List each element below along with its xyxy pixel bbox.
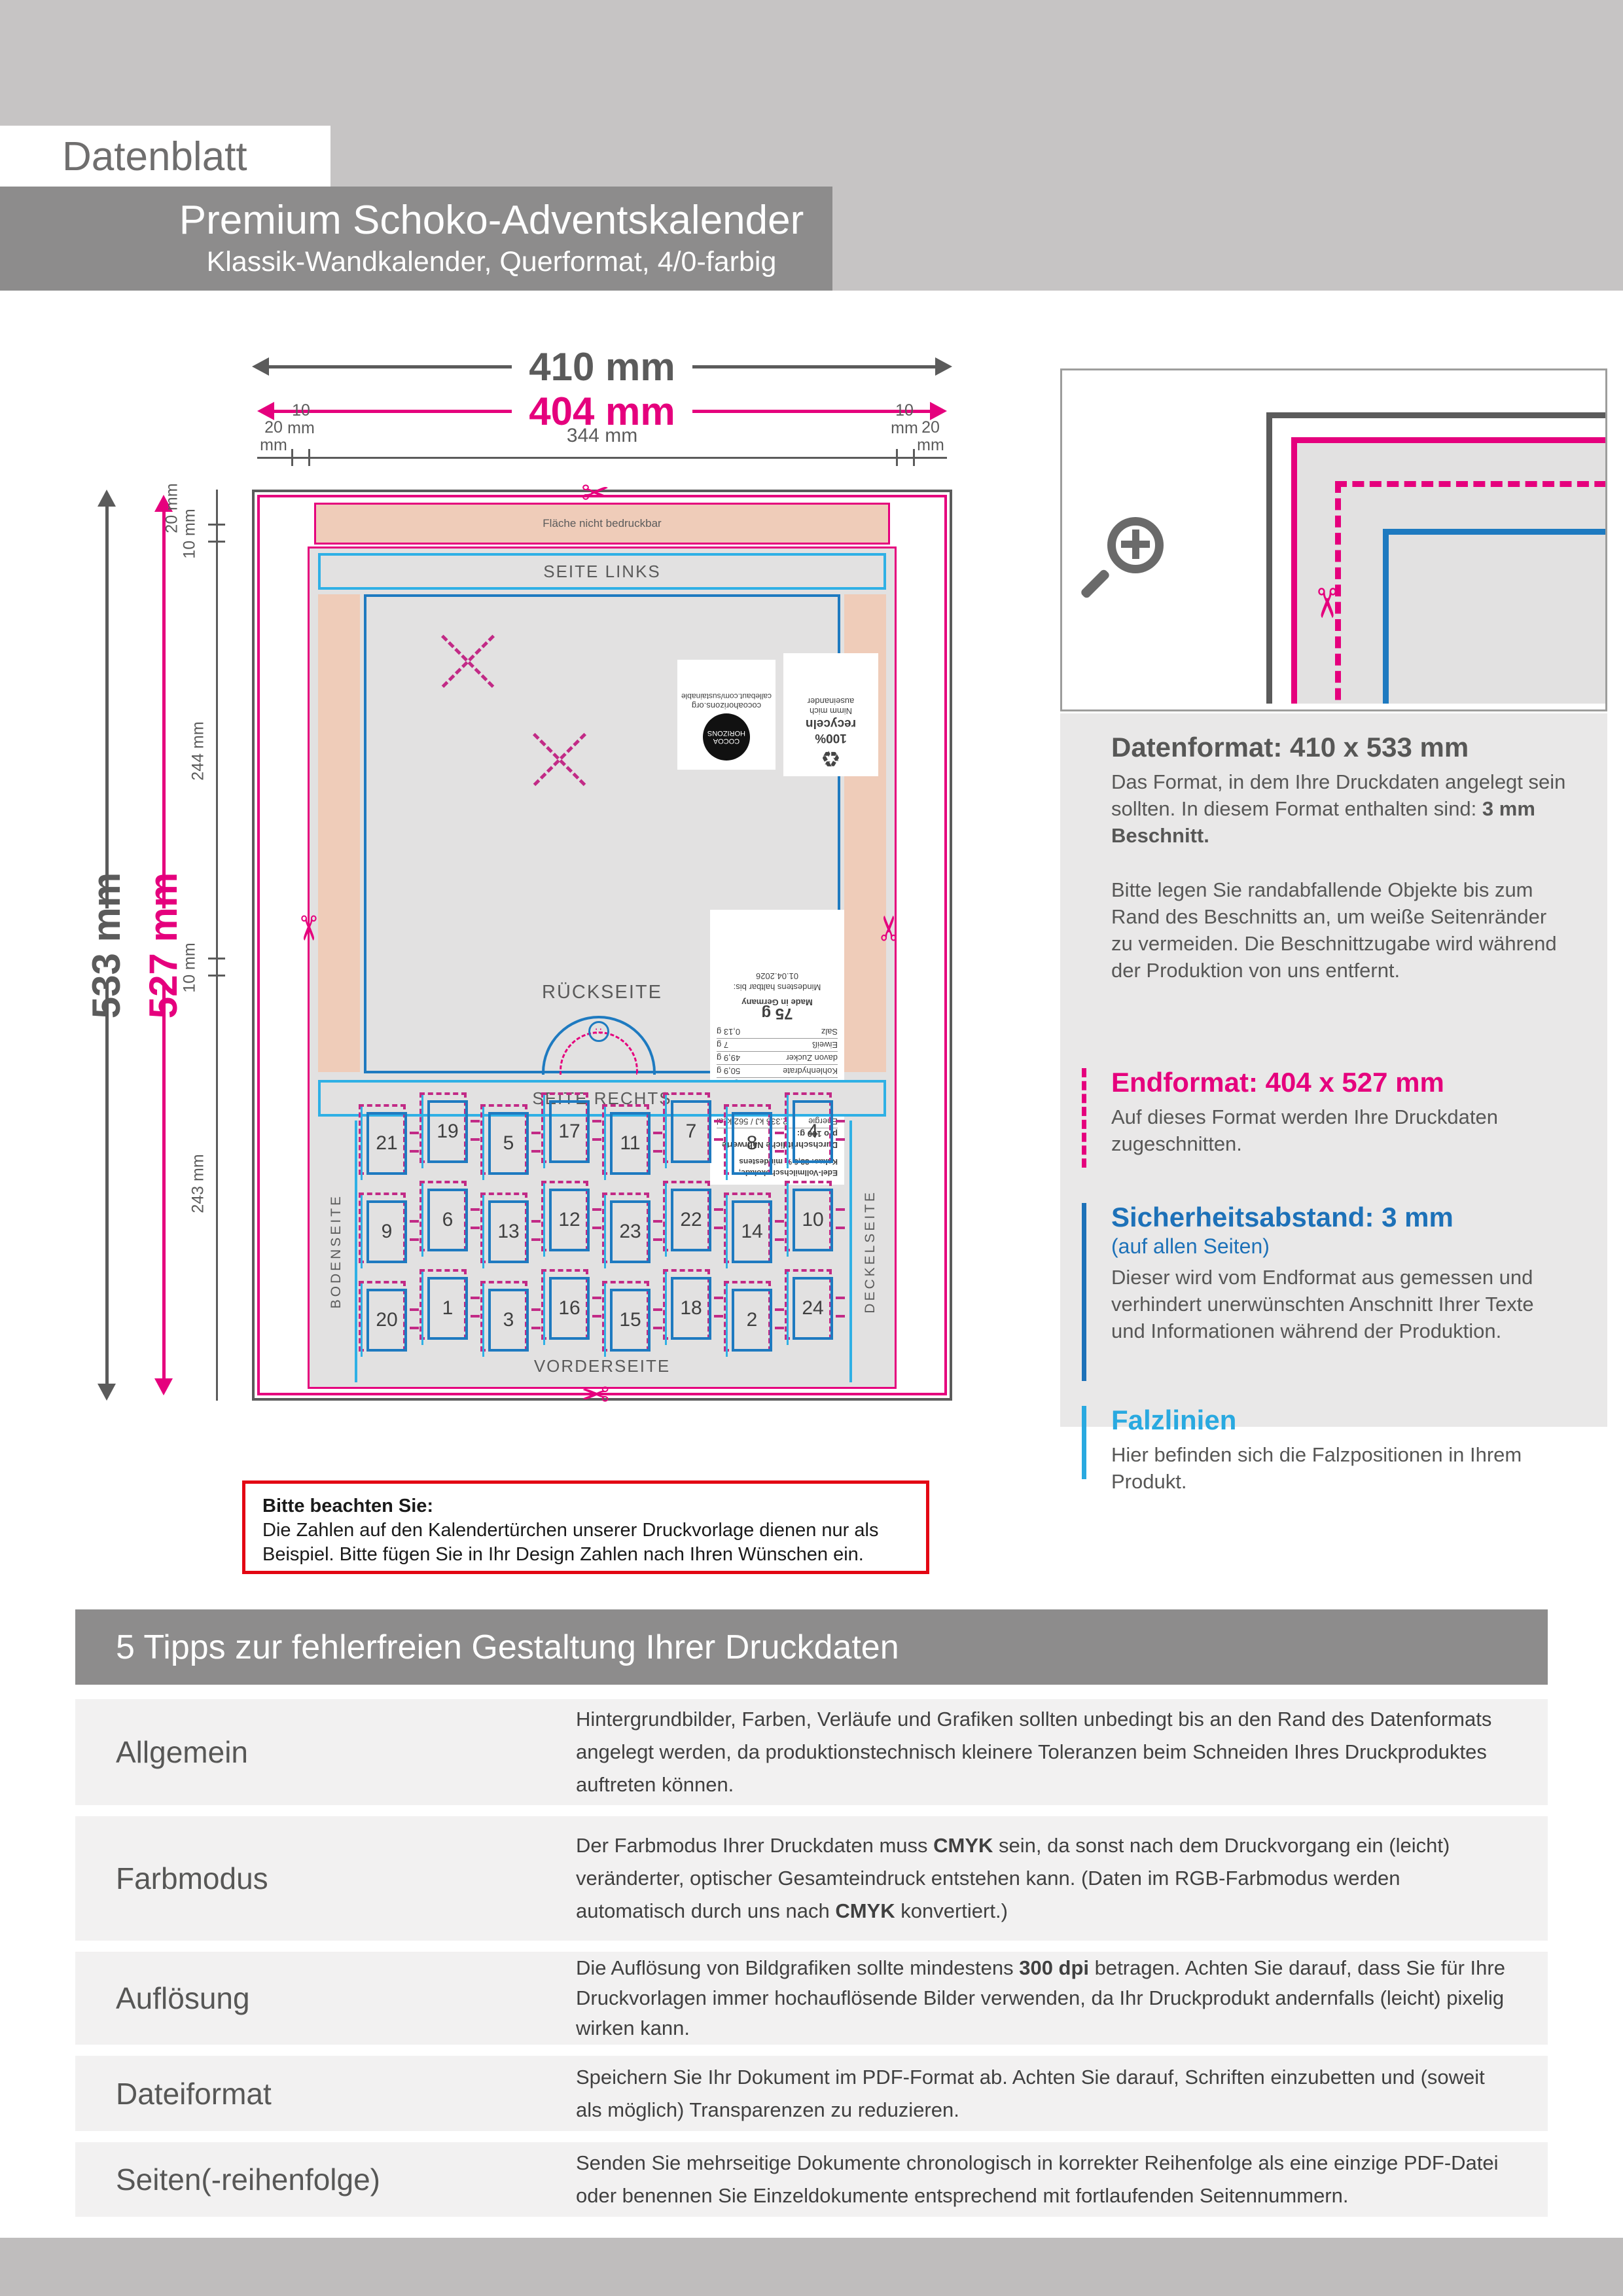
safety-line — [1383, 529, 1605, 704]
door-foldline — [482, 1195, 484, 1268]
door-mark — [775, 1150, 784, 1153]
ruler-tick — [308, 449, 310, 466]
tip-label: Seiten(-reihenfolge) — [75, 2162, 576, 2197]
door-mark — [471, 1208, 480, 1211]
tip-label: Farbmodus — [75, 1861, 576, 1896]
door-mark — [836, 1120, 845, 1122]
door-foldline — [665, 1095, 667, 1168]
door-mark — [836, 1227, 845, 1229]
door-number: 3 — [488, 1289, 529, 1352]
door-mark — [410, 1220, 419, 1223]
calendar-door: 22 — [671, 1189, 711, 1251]
door-foldline — [726, 1107, 728, 1180]
ruler-label-20mm-right: 20 mm — [911, 419, 950, 454]
rueckseite-label: RÜCKSEITE — [364, 982, 840, 1003]
ruler-label-20mm-top: 20 mm — [163, 483, 182, 533]
calendar-door: 2 — [732, 1289, 772, 1352]
nutrition-row: Salz0,13 g — [717, 1026, 838, 1039]
calendar-door: 20 — [366, 1289, 407, 1352]
door-foldline — [361, 1107, 363, 1180]
calendar-door: 23 — [610, 1200, 651, 1263]
section-falzlinien: Falzlinien Hier befinden sich die Falzpo… — [1111, 1405, 1569, 1495]
door-mark — [775, 1308, 784, 1311]
arrowhead-icon — [154, 1378, 173, 1395]
calendar-door: 15 — [610, 1289, 651, 1352]
recycle-label: ♻ 100% recyceln Nimm mich auseinander — [783, 653, 878, 776]
door-mark — [471, 1138, 480, 1141]
door-mark — [653, 1308, 662, 1311]
scissors-icon-detail: ✂ — [1302, 586, 1350, 620]
door-number: 20 — [366, 1289, 407, 1352]
deckelseite-label: DECKELSEITE — [863, 1190, 878, 1314]
door-number: 7 — [671, 1100, 711, 1163]
door-number: 21 — [366, 1112, 407, 1175]
calendar-door: 3 — [488, 1289, 529, 1352]
datenformat-heading: Datenformat: 410 x 533 mm — [1111, 732, 1569, 763]
tip-label: Dateiformat — [75, 2076, 576, 2111]
door-mark — [714, 1120, 723, 1122]
door-mark — [410, 1308, 419, 1311]
ruler-tick — [208, 975, 225, 977]
calendar-door: 24 — [793, 1277, 833, 1340]
nutrition-row: Kohlenhydrate50,9 g — [717, 1065, 838, 1078]
door-foldline — [361, 1283, 363, 1357]
falz-heading: Falzlinien — [1111, 1405, 1569, 1436]
arrowhead-icon — [98, 1384, 116, 1401]
door-foldline — [726, 1283, 728, 1357]
sicherheit-subheading: (auf allen Seiten) — [1111, 1233, 1569, 1260]
door-mark — [714, 1208, 723, 1211]
door-number: 11 — [610, 1112, 651, 1175]
scissors-icon-top: ✂ — [581, 476, 610, 511]
door-number: 13 — [488, 1200, 529, 1263]
door-mark — [836, 1315, 845, 1318]
door-mark — [592, 1227, 601, 1229]
door-mark — [592, 1120, 601, 1122]
door-number: 4 — [793, 1100, 833, 1163]
door-mark — [592, 1138, 601, 1141]
ruler-label-10mm-mid: 10 mm — [181, 942, 200, 992]
calendar-door: 21 — [366, 1112, 407, 1175]
tip-row-seitenreihenfolge: Seiten(-reihenfolge) Senden Sie mehrseit… — [75, 2142, 1548, 2217]
hanging-hole-button: ∷ — [588, 1021, 609, 1042]
door-foldline — [604, 1195, 606, 1268]
calendar-door: 19 — [427, 1100, 468, 1163]
door-foldline — [787, 1272, 789, 1345]
tips-title: 5 Tipps zur fehlerfreien Gestaltung Ihre… — [116, 1628, 899, 1667]
door-number: 23 — [610, 1200, 651, 1263]
door-mark — [531, 1150, 541, 1153]
ruler-tick — [208, 541, 225, 543]
door-foldline — [421, 1183, 423, 1257]
dimension-533mm: 533 mm — [84, 490, 130, 1401]
arrowhead-icon — [935, 357, 952, 376]
peach-strip-left — [318, 594, 360, 1072]
door-foldline — [665, 1272, 667, 1345]
calendar-door: 9 — [366, 1200, 407, 1263]
datenblatt-label: Datenblatt — [0, 134, 247, 180]
door-number: 8 — [732, 1112, 772, 1175]
info-panel: Datenformat: 410 x 533 mm Das Format, in… — [1060, 713, 1607, 1427]
door-mark — [653, 1220, 662, 1223]
door-foldline — [482, 1283, 484, 1357]
top-ruler-line — [257, 457, 947, 459]
calendar-door: 11 — [610, 1112, 651, 1175]
door-mark — [471, 1227, 480, 1229]
dimension-527mm: 527 mm — [141, 495, 187, 1395]
page-subtitle: Klassik-Wandkalender, Querformat, 4/0-fa… — [151, 243, 832, 280]
section-sicherheitsabstand: Sicherheitsabstand: 3 mm (auf allen Seit… — [1111, 1202, 1569, 1344]
ruler-label-344mm: 344 mm — [556, 427, 648, 444]
flap-label: Fläche nicht bedruckbar — [543, 517, 661, 530]
door-number: 6 — [427, 1189, 468, 1251]
door-number: 14 — [732, 1200, 772, 1263]
cocoa-url2: callebaut.com/sustainable — [681, 692, 772, 701]
door-number: 12 — [549, 1189, 590, 1251]
tip-row-aufloesung: Auflösung Die Auflösung von Bildgrafiken… — [75, 1952, 1548, 2045]
calendar-door: 7 — [671, 1100, 711, 1163]
cocoa-url: cocoahorizons.org — [681, 701, 772, 711]
door-foldline — [421, 1095, 423, 1168]
sicherheit-text: Dieser wird vom Endformat aus gemessen u… — [1111, 1264, 1569, 1344]
panel-deckelseite: DECKELSEITE — [849, 1121, 889, 1382]
seite-links-label: SEITE LINKS — [543, 562, 661, 582]
tip-label: Auflösung — [75, 1981, 576, 2016]
calendar-door: 8 — [732, 1112, 772, 1175]
door-number: 18 — [671, 1277, 711, 1340]
door-mark — [653, 1238, 662, 1241]
tip-label: Allgemein — [75, 1734, 576, 1770]
datenformat-text1: Das Format, in dem Ihre Druckdaten angel… — [1111, 768, 1569, 849]
tips-title-bar: 5 Tipps zur fehlerfreien Gestaltung Ihre… — [75, 1609, 1548, 1685]
datenformat-text2: Bitte legen Sie randabfallende Objekte b… — [1111, 876, 1569, 984]
door-number: 22 — [671, 1189, 711, 1251]
door-mark — [531, 1220, 541, 1223]
door-mark — [592, 1208, 601, 1211]
tip-row-farbmodus: Farbmodus Der Farbmodus Ihrer Druckdaten… — [75, 1816, 1548, 1941]
left-ruler-line — [216, 490, 218, 1401]
tip-text: Speichern Sie Ihr Dokument im PDF-Format… — [576, 2061, 1548, 2126]
cocoa-label: COCOA HORIZONS cocoahorizons.org calleba… — [677, 660, 776, 770]
tip-text: Der Farbmodus Ihrer Druckdaten muss CMYK… — [576, 1829, 1548, 1928]
door-mark — [714, 1227, 723, 1229]
calendar-door: 14 — [732, 1200, 772, 1263]
datasheet-page: Datenblatt Premium Schoko-Adventskalende… — [0, 0, 1623, 2296]
door-mark — [836, 1138, 845, 1141]
door-number: 2 — [732, 1289, 772, 1352]
sicherheit-heading: Sicherheitsabstand: 3 mm — [1111, 1202, 1569, 1233]
door-number: 1 — [427, 1277, 468, 1340]
sicherheit-marker-line — [1082, 1203, 1086, 1381]
door-mark — [775, 1220, 784, 1223]
door-foldline — [787, 1183, 789, 1257]
door-mark — [410, 1238, 419, 1241]
corner-detail-illustration: ✂ — [1266, 412, 1605, 704]
door-mark — [531, 1132, 541, 1134]
ruler-tick — [896, 449, 898, 466]
tip-text: Senden Sie mehrseitige Dokumente chronol… — [576, 2147, 1548, 2212]
note-box: Bitte beachten Sie: Die Zahlen auf den K… — [242, 1480, 929, 1574]
panel-seite-links: SEITE LINKS — [318, 553, 886, 590]
scissors-icon-left: ✂ — [291, 914, 325, 942]
tip-text: Hintergrundbilder, Farben, Verläufe und … — [576, 1703, 1548, 1801]
endformat-marker-line — [1082, 1068, 1086, 1168]
tip-row-allgemein: Allgemein Hintergrundbilder, Farben, Ver… — [75, 1699, 1548, 1805]
door-number: 24 — [793, 1277, 833, 1340]
door-number: 17 — [549, 1100, 590, 1163]
calendar-door: 4 — [793, 1100, 833, 1163]
door-mark — [653, 1327, 662, 1329]
falz-text: Hier befinden sich die Falzpositionen in… — [1111, 1441, 1569, 1495]
calendar-door: 17 — [549, 1100, 590, 1163]
door-mark — [592, 1315, 601, 1318]
scissors-icon-bottom: ✂ — [581, 1376, 610, 1410]
door-mark — [592, 1297, 601, 1299]
note-text: Die Zahlen auf den Kalendertürchen unser… — [262, 1520, 878, 1565]
door-number: 10 — [793, 1189, 833, 1251]
ruler-label-10mm-top: 10 mm — [181, 509, 200, 558]
door-foldline — [482, 1107, 484, 1180]
door-number: 15 — [610, 1289, 651, 1352]
nutrition-row: Eiweiß7 g — [717, 1039, 838, 1052]
door-number: 16 — [549, 1277, 590, 1340]
weight-label: 75 g — [717, 1008, 838, 1019]
door-mark — [471, 1297, 480, 1299]
arrowhead-icon — [98, 490, 116, 507]
title-bar: Premium Schoko-Adventskalender Klassik-W… — [0, 187, 832, 291]
calendar-door: 5 — [488, 1112, 529, 1175]
note-heading: Bitte beachten Sie: — [262, 1494, 909, 1518]
door-foldline — [726, 1195, 728, 1268]
arrowhead-icon — [252, 357, 269, 376]
door-mark — [471, 1120, 480, 1122]
door-mark — [531, 1327, 541, 1329]
ruler-tick — [208, 524, 225, 526]
door-mark — [410, 1150, 419, 1153]
door-mark — [714, 1138, 723, 1141]
datenblatt-box: Datenblatt — [0, 126, 330, 187]
ruler-tick — [208, 958, 225, 960]
door-foldline — [787, 1095, 789, 1168]
footer-band — [0, 2238, 1623, 2296]
section-datenformat: Datenformat: 410 x 533 mm Das Format, in… — [1111, 732, 1569, 984]
recycle-subtitle: Nimm mich auseinander — [789, 696, 873, 716]
door-mark — [653, 1150, 662, 1153]
falz-marker-line — [1082, 1406, 1086, 1479]
ruler-label-10mm-left: 10 mm — [281, 402, 321, 437]
page-title: Premium Schoko-Adventskalender — [151, 198, 832, 243]
panel-bodenseite: BODENSEITE — [318, 1121, 357, 1382]
door-mark — [471, 1315, 480, 1318]
door-foldline — [543, 1272, 545, 1345]
door-number: 19 — [427, 1100, 468, 1163]
door-mark — [836, 1208, 845, 1211]
tip-text: Die Auflösung von Bildgrafiken sollte mi… — [576, 1953, 1548, 2043]
ruler-label-243mm: 243 mm — [189, 1154, 208, 1213]
cocoa-logo-icon: COCOA HORIZONS — [703, 713, 750, 761]
door-mark — [775, 1238, 784, 1241]
door-number: 5 — [488, 1112, 529, 1175]
calendar-door: 18 — [671, 1277, 711, 1340]
arrowhead-icon — [257, 402, 274, 420]
door-mark — [531, 1238, 541, 1241]
endformat-heading: Endformat: 404 x 527 mm — [1111, 1067, 1569, 1098]
magnifier-plus-icon — [1132, 529, 1139, 559]
dimension-410mm: 410 mm — [252, 343, 952, 390]
door-number: 9 — [366, 1200, 407, 1263]
recycle-title: 100% recyceln — [789, 716, 873, 745]
calendar-door: 1 — [427, 1277, 468, 1340]
door-mark — [410, 1132, 419, 1134]
door-mark — [836, 1297, 845, 1299]
door-foldline — [604, 1107, 606, 1180]
door-foldline — [421, 1272, 423, 1345]
door-mark — [714, 1315, 723, 1318]
dot-marks: ∷ — [595, 1025, 602, 1038]
calendar-door: 12 — [549, 1189, 590, 1251]
endformat-text: Auf dieses Format werden Ihre Druckdaten… — [1111, 1103, 1569, 1157]
door-foldline — [665, 1183, 667, 1257]
dimension-410mm-label: 410 mm — [512, 344, 692, 389]
calendar-door: 13 — [488, 1200, 529, 1263]
calendar-door: 6 — [427, 1189, 468, 1251]
door-foldline — [543, 1095, 545, 1168]
tip-row-dateiformat: Dateiformat Speichern Sie Ihr Dokument i… — [75, 2056, 1548, 2131]
door-mark — [410, 1327, 419, 1329]
nutrition-row: davon Zucker49,9 g — [717, 1052, 838, 1065]
door-mark — [775, 1327, 784, 1329]
door-mark — [531, 1308, 541, 1311]
ruler-label-244mm: 244 mm — [189, 721, 208, 780]
door-foldline — [361, 1195, 363, 1268]
recycle-icon: ♻ — [789, 745, 873, 771]
scissors-icon-right: ✂ — [873, 914, 907, 942]
arrowhead-icon — [930, 402, 947, 420]
door-mark — [775, 1132, 784, 1134]
door-foldline — [604, 1283, 606, 1357]
door-mark — [653, 1132, 662, 1134]
section-endformat: Endformat: 404 x 527 mm Auf dieses Forma… — [1111, 1067, 1569, 1157]
calendar-door: 10 — [793, 1189, 833, 1251]
bodenseite-label: BODENSEITE — [329, 1194, 344, 1308]
door-foldline — [543, 1183, 545, 1257]
calendar-door: 16 — [549, 1277, 590, 1340]
door-mark — [714, 1297, 723, 1299]
mhd-date: 01.04.2026 — [717, 971, 838, 982]
